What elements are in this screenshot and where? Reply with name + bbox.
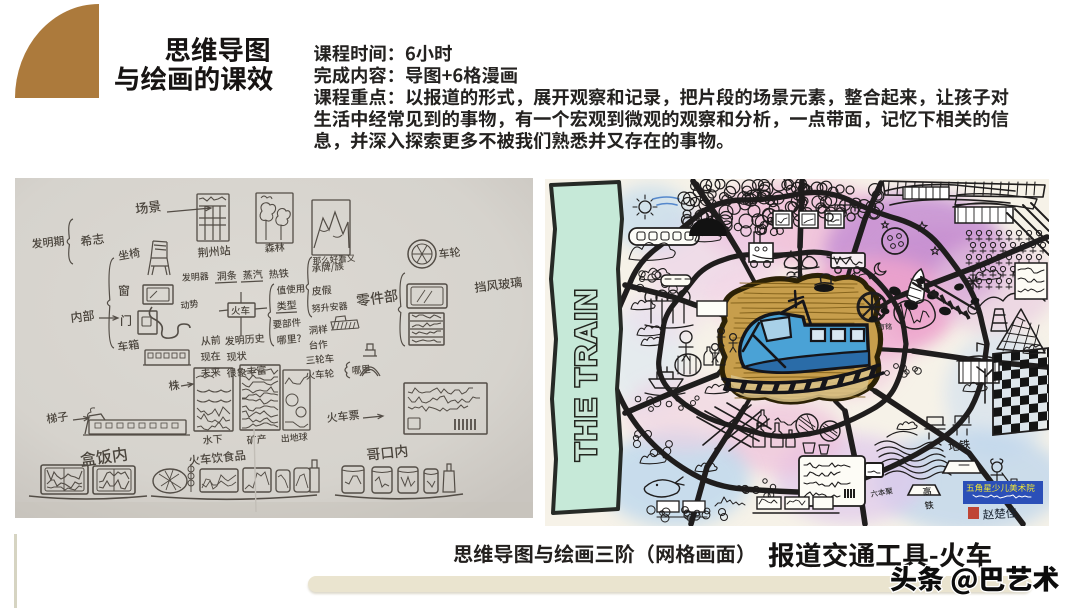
svg-text:THE TRAIN: THE TRAIN (570, 288, 603, 462)
